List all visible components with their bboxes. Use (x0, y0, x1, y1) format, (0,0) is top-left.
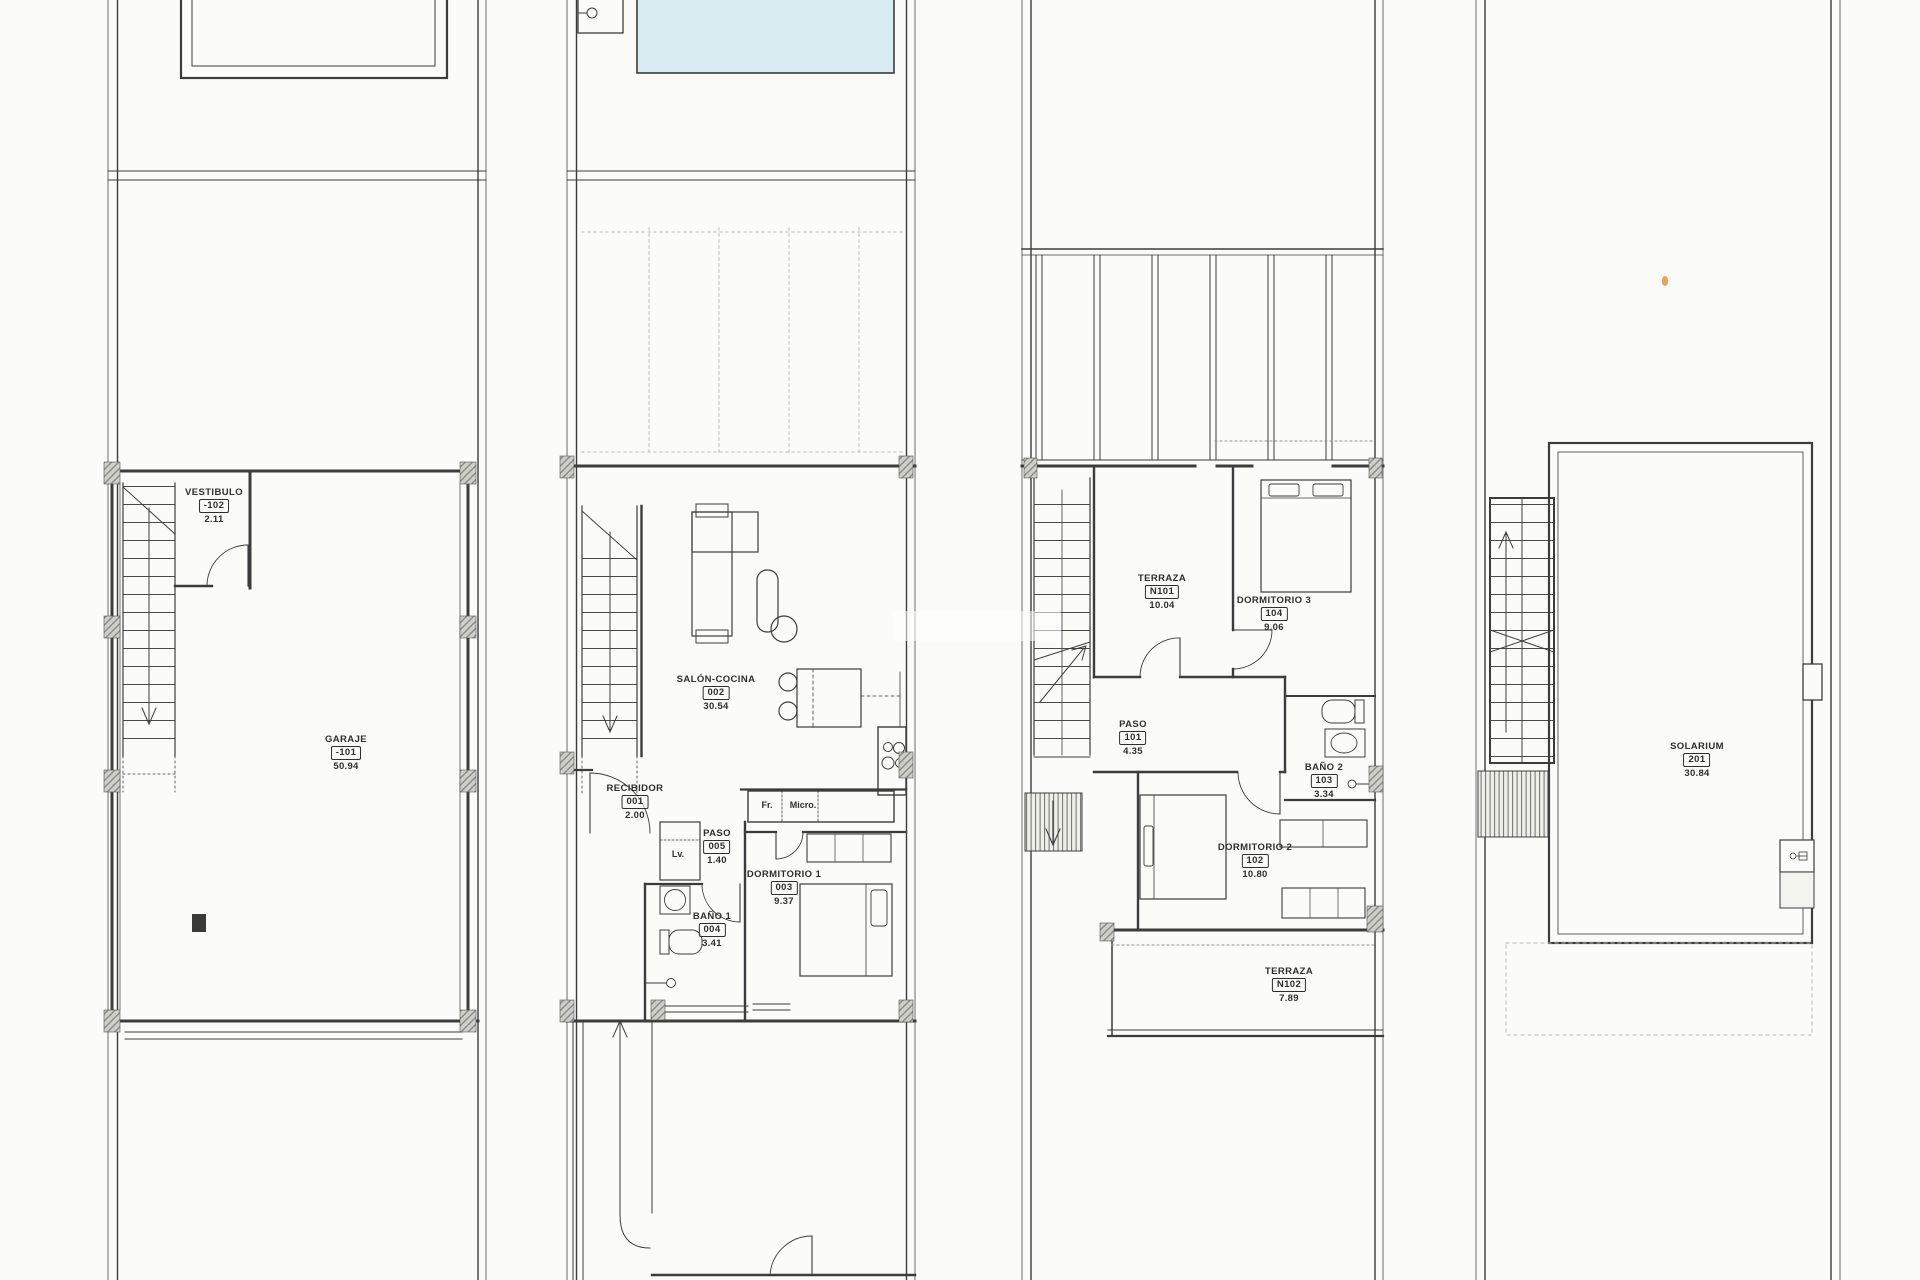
stairs-roof (1490, 498, 1554, 763)
sofa (692, 504, 758, 643)
room-area: 9.06 (1237, 622, 1311, 633)
room-label-solarium: SOLARIUM 201 30.84 (1670, 741, 1724, 779)
stairs-basement (123, 483, 175, 792)
room-name: DORMITORIO 3 (1237, 595, 1311, 606)
room-name: BAÑO 1 (693, 911, 731, 922)
room-label-paso-101: PASO 101 4.35 (1119, 719, 1147, 757)
room-area: 2.00 (607, 810, 664, 821)
room-name: PASO (703, 828, 731, 839)
room-area: 3.34 (1305, 789, 1343, 800)
room-area: 7.89 (1265, 993, 1313, 1004)
door-swing (770, 1236, 812, 1275)
room-code: 104 (1260, 607, 1287, 620)
plan-ground-floor (560, 0, 915, 1280)
room-code: 001 (621, 795, 648, 808)
room-label-dormitorio-1: DORMITORIO 1 003 9.37 (747, 869, 821, 907)
room-label-terraza-n102: TERRAZA N102 7.89 (1265, 966, 1313, 1004)
room-name: PASO (1119, 719, 1147, 730)
room-area: 10.04 (1138, 600, 1186, 611)
entry-path (573, 1021, 915, 1280)
plan-first-floor (1022, 0, 1383, 1280)
room-name: VESTIBULO (185, 487, 243, 498)
room-name: DORMITORIO 1 (747, 869, 821, 880)
room-area: 9.37 (747, 896, 821, 907)
scan-artifact (1662, 276, 1668, 286)
room-name: DORMITORIO 2 (1218, 842, 1292, 853)
room-area: 3.41 (693, 938, 731, 949)
room-code: 201 (1683, 753, 1710, 766)
floor-below-outline (1506, 943, 1812, 1035)
fridge-label: Fr. (761, 801, 772, 810)
room-code: 004 (698, 923, 725, 936)
microwave-label: Micro. (790, 801, 817, 810)
lounge-chair (757, 570, 778, 632)
room-area: 1.40 (703, 855, 731, 866)
door-swing (207, 545, 248, 586)
room-label-paso-005: PASO 005 1.40 (703, 828, 731, 866)
room-area: 30.54 (677, 701, 756, 712)
room-code: N102 (1272, 978, 1306, 991)
room-area: 10.80 (1218, 869, 1292, 880)
room-label-dormitorio-2: DORMITORIO 2 102 10.80 (1218, 842, 1292, 880)
pool (637, 0, 894, 73)
washer-label: Lv. (672, 850, 684, 859)
room-code: -101 (331, 746, 362, 759)
room-label-bano-2: BAÑO 2 103 3.34 (1305, 762, 1343, 800)
room-code: 101 (1119, 731, 1146, 744)
dining-table (779, 669, 900, 727)
room-area: 2.11 (185, 514, 243, 525)
door-swing (1140, 638, 1180, 677)
pergola-beams (1022, 249, 1383, 460)
room-label-salon-cocina: SALÓN-COCINA 002 30.54 (677, 674, 756, 712)
room-name: GARAJE (325, 734, 367, 745)
plan-basement (104, 0, 486, 1280)
room-name: SALÓN-COCINA (677, 674, 756, 685)
bed-dormitorio-2 (1140, 795, 1226, 899)
room-code: 003 (770, 881, 797, 894)
floor-plan-sheet: VESTIBULO -102 2.11 GARAJE -101 50.94 SA… (0, 0, 1920, 1280)
door-swing (1233, 630, 1272, 669)
room-name: TERRAZA (1265, 966, 1313, 977)
garage-column (192, 914, 206, 932)
room-area: 30.84 (1670, 768, 1724, 779)
room-name: SOLARIUM (1670, 741, 1724, 752)
room-label-bano-1: BAÑO 1 004 3.41 (693, 911, 731, 949)
room-area: 50.94 (325, 761, 367, 772)
stairs-ground (582, 506, 637, 795)
solarium-utility-box (1780, 840, 1814, 908)
solarium-parapet (1549, 443, 1812, 943)
wardrobe-dormitorio-2 (1280, 820, 1367, 918)
plan-roof (1476, 0, 1840, 1280)
room-code: N101 (1145, 585, 1179, 598)
room-code: 103 (1310, 774, 1337, 787)
awning-hatch (1478, 771, 1548, 837)
room-name: RECIBIDOR (607, 783, 664, 794)
door-swing (776, 832, 803, 859)
room-code: 005 (703, 840, 730, 853)
room-name: BAÑO 2 (1305, 762, 1343, 773)
bed-dormitorio-3 (1261, 480, 1351, 592)
outdoor-shower (578, 0, 623, 33)
room-label-garaje: GARAJE -101 50.94 (325, 734, 367, 772)
room-code: 002 (702, 686, 729, 699)
deck-lines (582, 228, 903, 455)
door-swing (1238, 772, 1280, 814)
watermark (893, 611, 1061, 641)
wardrobe-dormitorio-1 (807, 834, 891, 862)
chimney (1803, 664, 1822, 700)
room-label-vestibulo: VESTIBULO -102 2.11 (185, 487, 243, 525)
room-label-dormitorio-3: DORMITORIO 3 104 9.06 (1237, 595, 1311, 633)
room-code: -102 (199, 499, 230, 512)
room-code: 102 (1241, 854, 1268, 867)
room-name: TERRAZA (1138, 573, 1186, 584)
room-area: 4.35 (1119, 746, 1147, 757)
room-label-terraza-n101: TERRAZA N101 10.04 (1138, 573, 1186, 611)
room-label-recibidor: RECIBIDOR 001 2.00 (607, 783, 664, 821)
